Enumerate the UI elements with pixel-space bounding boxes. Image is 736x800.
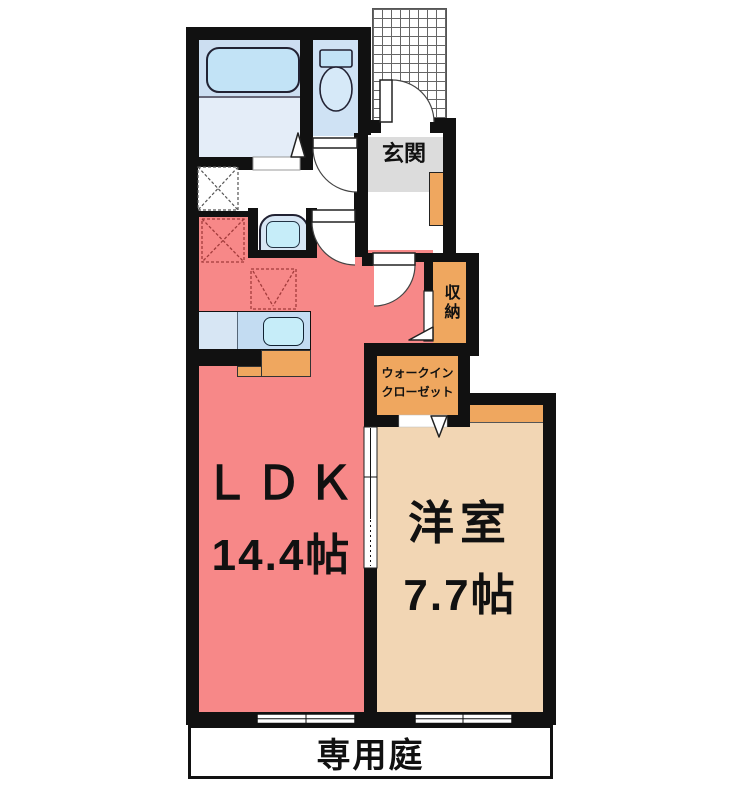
- ldk-hall-area: [364, 250, 433, 343]
- bathtub: [206, 47, 300, 93]
- wall-storage-right: [466, 253, 479, 350]
- entrance-label: 玄関: [366, 142, 442, 166]
- western-room-size-label: 7.7帖: [377, 572, 543, 620]
- ldk-size-label: 14.4帖: [199, 532, 364, 580]
- wall-ldk-western-divider: [364, 566, 377, 712]
- ldk-label: ＬＤＫ: [199, 458, 364, 509]
- walk-in-closet-label: ウォークイン クローゼット: [374, 364, 461, 401]
- western-room-shelf: [469, 405, 543, 423]
- storage-label: 収納: [433, 264, 466, 342]
- toilet-room: [313, 40, 358, 136]
- kitchen-counter-left: [198, 312, 238, 349]
- western-room-area: [377, 415, 543, 712]
- wall-western-top: [458, 393, 556, 405]
- vanity-sink: [266, 221, 300, 248]
- wall-washroom-ldk: [197, 211, 248, 217]
- private-garden: 専用庭: [188, 725, 553, 779]
- wall-bath-toilet: [300, 33, 313, 160]
- kitchen-base-counter: [261, 350, 311, 377]
- private-garden-label: 専用庭: [317, 728, 425, 777]
- wall-bath-bottom-stub: [300, 157, 313, 170]
- wall-niche-bottom: [248, 250, 317, 258]
- kitchen-base-dark: [197, 350, 261, 366]
- wall-left-outer: [186, 27, 199, 725]
- wall-top-outer: [186, 27, 371, 40]
- wall-niche-left: [248, 208, 258, 250]
- floor-plan: ＬＤＫ 14.4帖 洋室 7.7帖 玄関 収納 ウォークイン クローゼット 専用…: [0, 0, 736, 800]
- washer-space-icon: [198, 167, 238, 210]
- wall-wic-bottom-left: [364, 415, 399, 427]
- wall-porch-bottom-left: [366, 120, 381, 133]
- wall-toilet-right: [358, 27, 371, 135]
- wall-bottom-outer: [186, 712, 556, 725]
- bathroom-floor-zone: [199, 96, 300, 159]
- wall-bath-bottom: [186, 157, 253, 170]
- kitchen-base-counter-step: [237, 366, 262, 377]
- wall-western-right: [543, 393, 556, 725]
- wall-entrance-door-stub: [362, 253, 373, 266]
- toilet-door: [313, 138, 357, 192]
- western-room-label: 洋室: [377, 498, 543, 549]
- wall-storage-left: [424, 262, 433, 293]
- ldk-western-sliding-door: [364, 427, 377, 568]
- entrance-porch-grid: [372, 8, 447, 122]
- wall-entrance-right: [443, 118, 456, 262]
- wall-wic-bottom-right: [447, 415, 470, 427]
- kitchen-sink: [263, 317, 304, 346]
